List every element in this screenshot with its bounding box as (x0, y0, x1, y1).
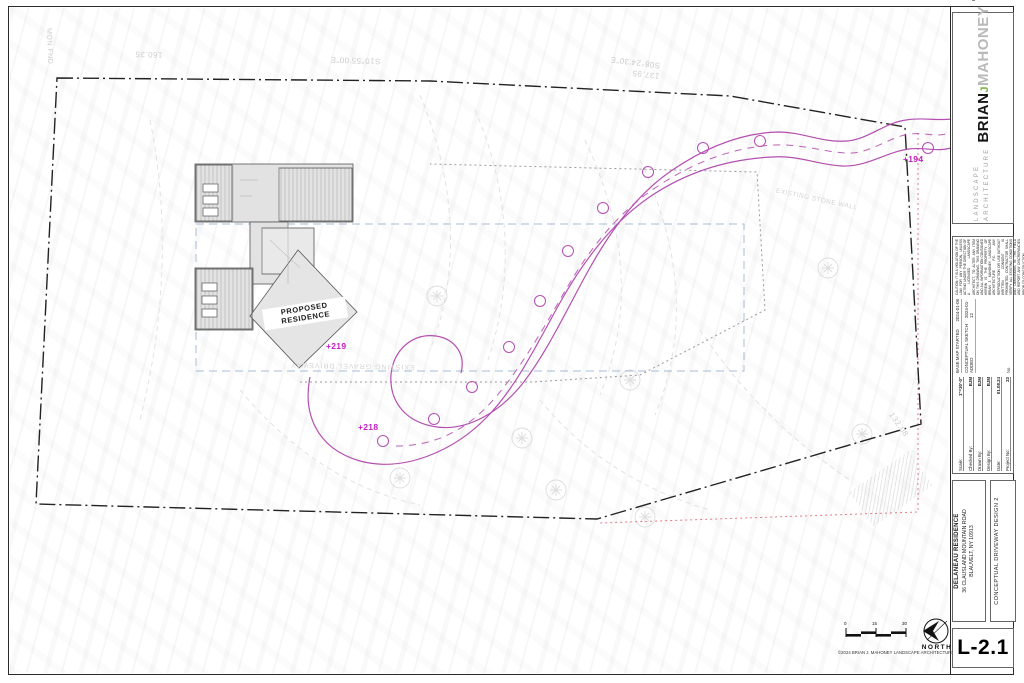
firm-name-middle: J (979, 86, 991, 93)
firm-tagline: LANDSCAPE ARCHITECTURE (973, 148, 992, 221)
project-city: BLAUVELT, NY 10913 (969, 482, 976, 620)
field-scale-value: 1"=30'-0" (958, 377, 963, 396)
titleblock-info-box: Scale:1"=30'-0" Checked By:BJM Drawn By:… (952, 236, 1014, 474)
firm-email: BRIAN@BRIANMAHONEY.COM (971, 0, 977, 1)
revision-1-date: 2024-01-08 (955, 299, 960, 321)
firm-address-line2: WESTHAMPTON BEACH, NY 11978 (983, 0, 995, 1)
revision-1-desc: BASE MAP STARTED (955, 329, 960, 373)
field-scale-label: Scale: (958, 459, 963, 471)
firm-name-secondary: MAHONEY (975, 6, 992, 86)
titleblock-logo-box: LANDSCAPE ARCHITECTURE BRIANJMAHONEY WWW… (952, 12, 1014, 224)
firm-name-primary: BRIAN (975, 93, 992, 143)
field-checked-value: BJM (968, 377, 973, 386)
firm-logo: BRIANJMAHONEY (975, 6, 992, 143)
drawing-sheet: PROPOSED RESIDENCE +219 +218 +194 160.35… (0, 0, 1024, 683)
field-checked-label: Checked By: (968, 446, 973, 471)
firm-phone: PH: 631.288.0800 (995, 0, 1001, 1)
field-design-label: Design By: (986, 450, 991, 471)
revision-2-date: 2024-01-12 (964, 299, 974, 318)
field-drawn-label: Drawn By: (977, 451, 982, 471)
field-projectno-label: Project No: (1005, 449, 1010, 471)
titleblock-sheettitle-box: CONCEPTUAL DRIVEWAY DESIGN 2 (990, 480, 1016, 622)
field-date-value: 01.08.24 (996, 377, 1001, 394)
field-design-value: BJM (986, 377, 991, 386)
field-projectno-value: 23 (1005, 377, 1010, 382)
titleblock-revisions: BASE MAP STARTED2024-01-08 CONCEPTUAL SK… (955, 299, 1011, 373)
titleblock-disclaimer: CAUTION: IT IS A VIOLATION OF THE LAW FO… (955, 239, 1011, 295)
titleblock-divider (950, 6, 951, 675)
field-drawn-value: BJM (977, 377, 982, 386)
sheet-title: CONCEPTUAL DRIVEWAY DESIGN 2 (994, 482, 1012, 620)
field-date-label: Date: (996, 461, 1001, 472)
sheet-number: L-2.1 (952, 628, 1014, 668)
firm-tagline-line1: LANDSCAPE (973, 148, 983, 221)
titleblock-fields: Scale:1"=30'-0" Checked By:BJM Drawn By:… (955, 377, 1011, 471)
firm-tagline-line2: ARCHITECTURE (983, 148, 993, 221)
revision-row: CONCEPTUAL SKETCH ADDED2024-01-12 (964, 299, 976, 373)
firm-contact-block: WWW.BRIANMAHONEY.COM BRIAN@BRIANMAHONEY.… (965, 0, 1001, 1)
project-name: DELANEAU RESIDENCE (954, 482, 962, 620)
revision-no-header: No. (1006, 366, 1011, 373)
revision-row: BASE MAP STARTED2024-01-08 (955, 299, 962, 373)
revision-2-desc: CONCEPTUAL SKETCH ADDED (964, 318, 974, 373)
project-address: 36 CLAUSLAND MOUNTAIN ROAD (962, 482, 969, 620)
sheet-border (8, 6, 1014, 675)
titleblock-project-box: DELANEAU RESIDENCE 36 CLAUSLAND MOUNTAIN… (952, 480, 986, 622)
